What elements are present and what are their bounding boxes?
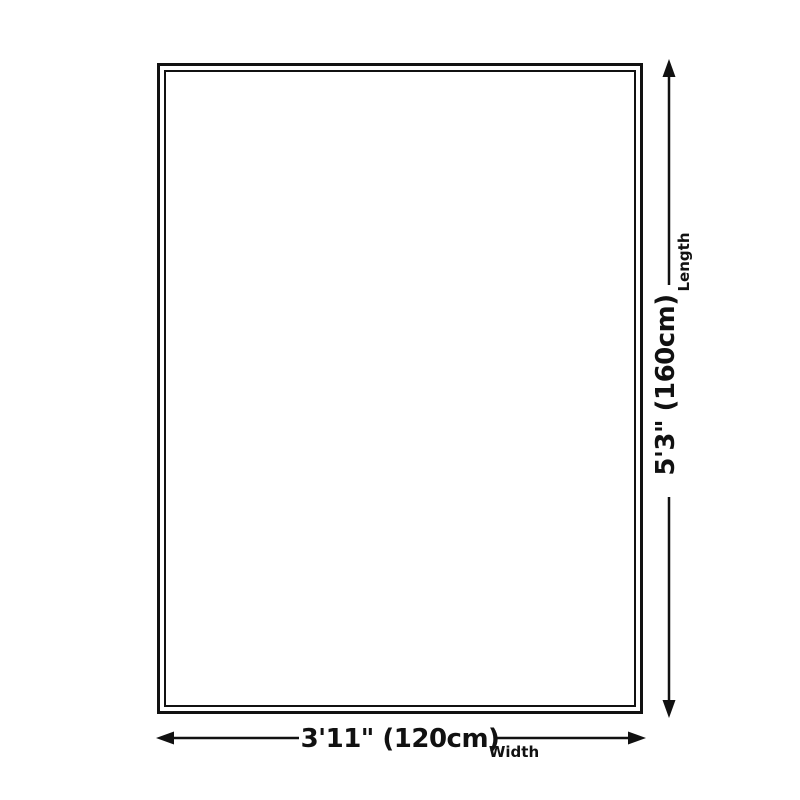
arrowhead-right-icon — [628, 732, 646, 745]
length-dimension-label: 5'3" (160cm) — [651, 294, 681, 475]
arrowhead-down-icon — [663, 700, 676, 718]
rug-inner-border — [164, 70, 636, 707]
size-diagram: 5'3" (160cm) Length 3'11" (120cm) Width — [0, 0, 800, 800]
arrowhead-left-icon — [156, 732, 174, 745]
width-dimension-label: 3'11" (120cm) — [301, 724, 500, 754]
arrowhead-up-icon — [663, 59, 676, 77]
length-axis-label: Length — [675, 233, 693, 292]
width-axis-label: Width — [489, 743, 539, 761]
rug-outline — [157, 63, 643, 714]
